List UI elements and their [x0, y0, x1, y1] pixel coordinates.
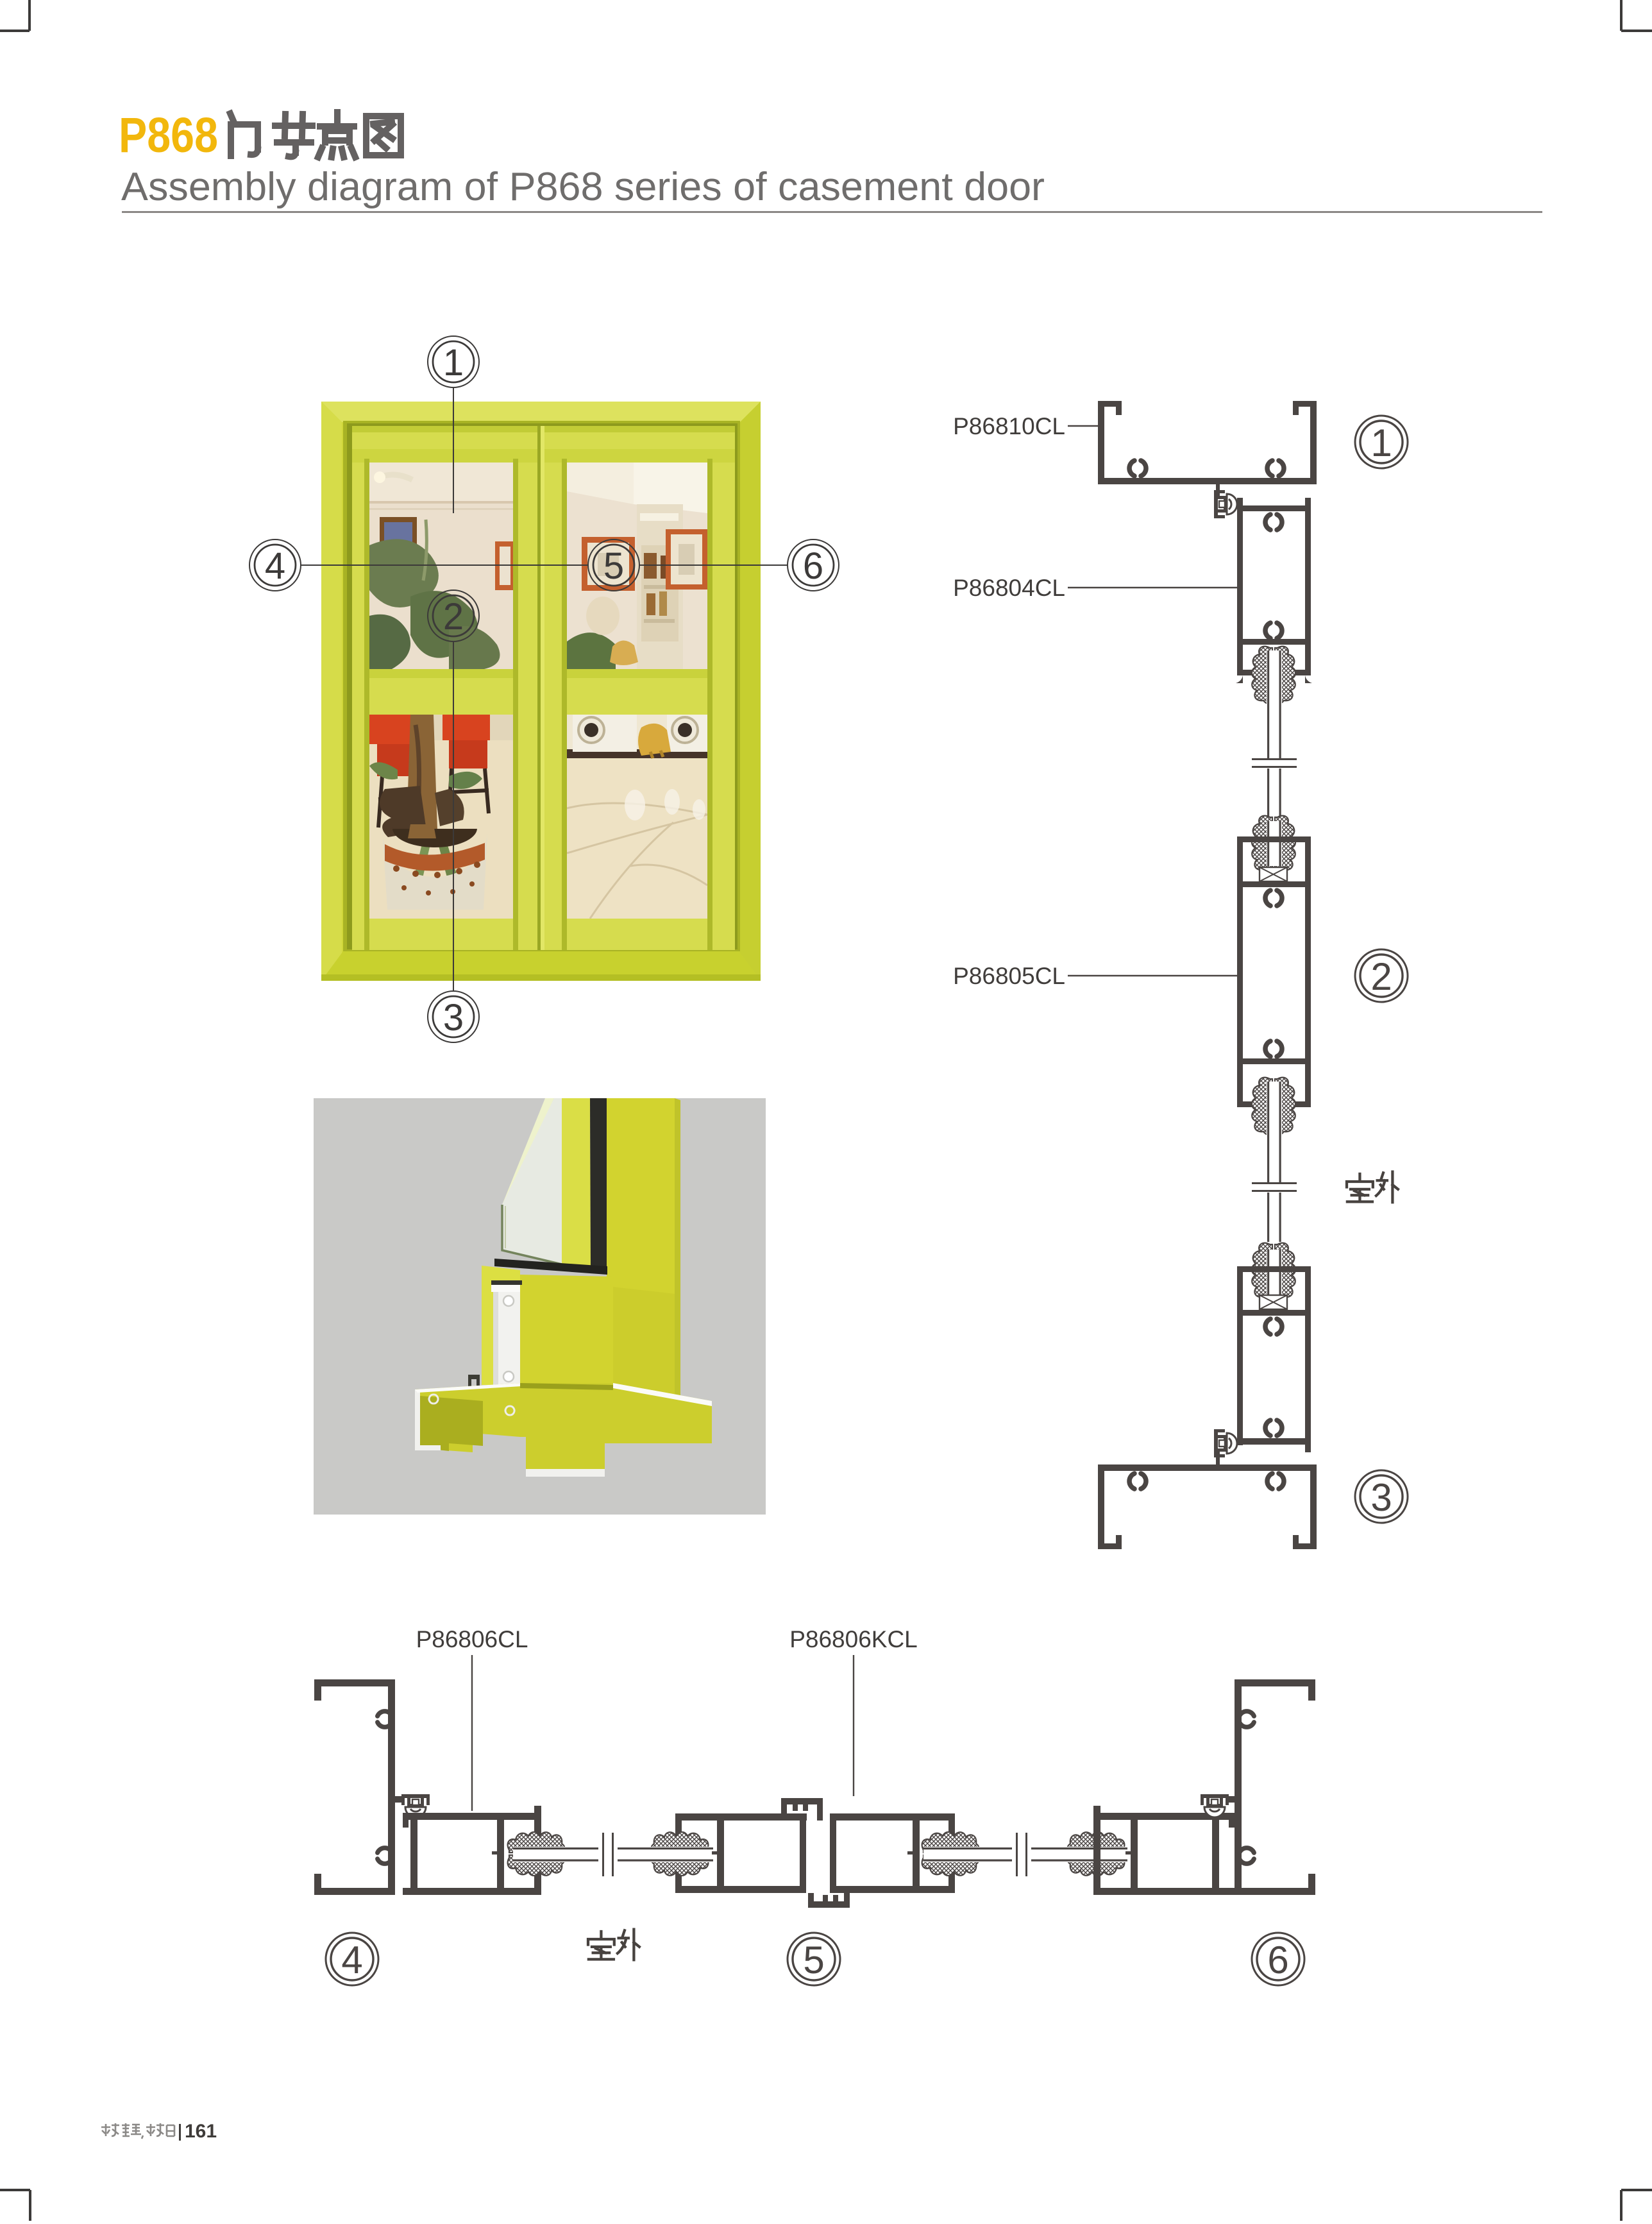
svg-text:P86804CL: P86804CL [953, 575, 1065, 601]
svg-text:2: 2 [443, 596, 464, 638]
svg-text:P86806KCL: P86806KCL [789, 1626, 918, 1652]
svg-text:6: 6 [1267, 1939, 1288, 1982]
svg-text:P868: P868 [119, 108, 218, 163]
svg-text:2: 2 [1370, 955, 1392, 998]
svg-text:4: 4 [265, 545, 285, 587]
svg-text:3: 3 [443, 997, 464, 1039]
svg-text:1: 1 [1370, 421, 1392, 464]
svg-text:3: 3 [1370, 1476, 1392, 1519]
svg-text:P86805CL: P86805CL [953, 963, 1065, 989]
svg-text:1: 1 [443, 342, 464, 384]
svg-text:5: 5 [603, 545, 624, 587]
svg-text:5: 5 [803, 1939, 824, 1982]
svg-text:Assembly diagram of P868 serie: Assembly diagram of P868 series of casem… [121, 165, 1045, 209]
svg-text:161: 161 [185, 2121, 217, 2142]
svg-text:4: 4 [341, 1939, 362, 1982]
svg-text:P86806CL: P86806CL [416, 1626, 528, 1652]
svg-text:P86810CL: P86810CL [953, 413, 1065, 439]
svg-text:6: 6 [803, 545, 823, 587]
